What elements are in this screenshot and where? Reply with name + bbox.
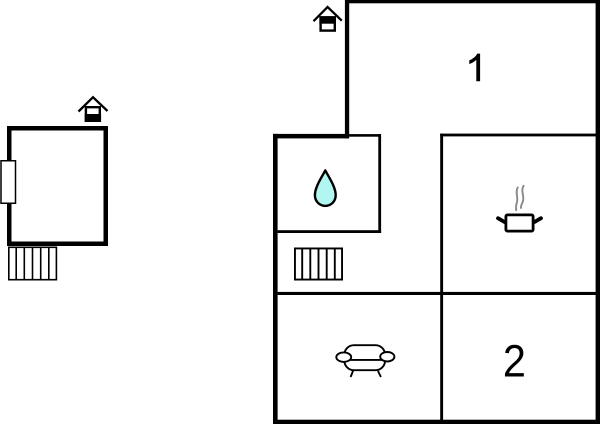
svg-text:2: 2 — [503, 337, 526, 387]
